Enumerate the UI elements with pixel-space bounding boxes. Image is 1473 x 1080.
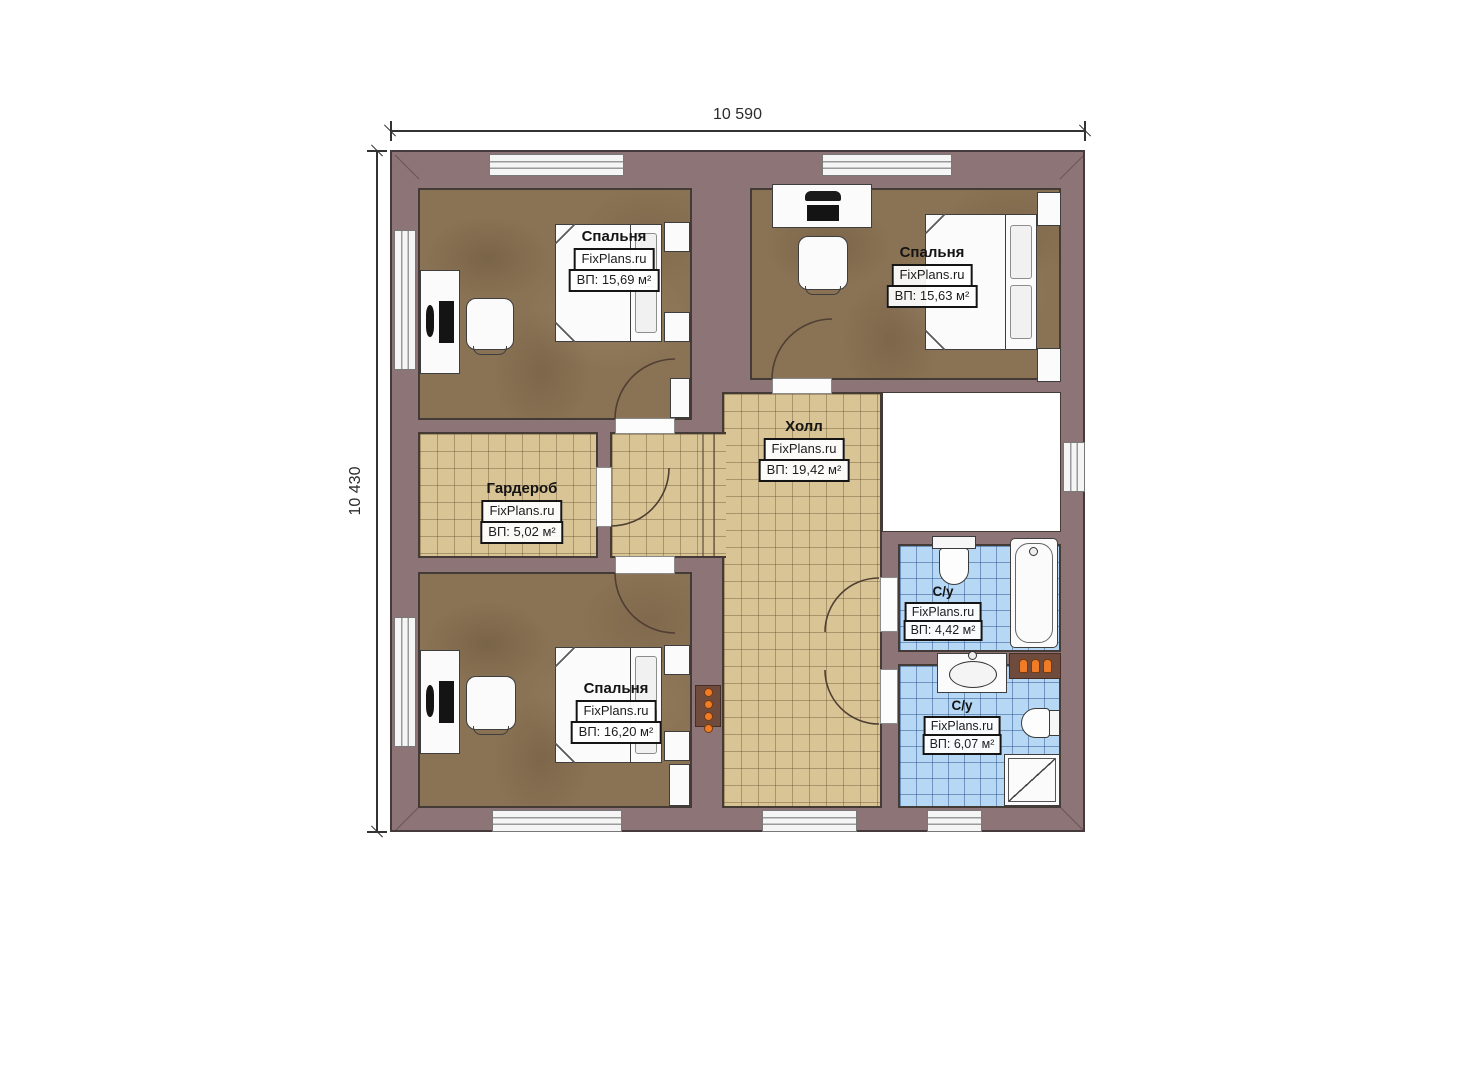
toilet-bowl-icon — [1021, 708, 1050, 738]
room-name: С/у — [932, 584, 953, 599]
blanket-fold-icon — [555, 647, 575, 667]
room-area: ВП: 15,69 м² — [569, 269, 660, 292]
office-chair — [798, 236, 848, 290]
door-opening — [615, 418, 675, 434]
watermark: FixPlans.ru — [575, 700, 656, 723]
computer-tower-icon — [439, 681, 454, 723]
toilet-tank-icon — [1049, 710, 1060, 736]
dimension-height-label: 10 430 — [347, 446, 365, 536]
door-opening — [772, 378, 832, 394]
room-corridor — [610, 432, 726, 558]
watermark: FixPlans.ru — [924, 716, 1001, 736]
room-label-bedroom-top-left: Спальня FixPlans.ru ВП: 15,69 м² — [569, 228, 660, 292]
nightstand — [1037, 348, 1061, 382]
door-opening — [880, 577, 898, 632]
room-label-hall: Холл FixPlans.ru ВП: 19,42 м² — [759, 418, 850, 482]
room-area: ВП: 19,42 м² — [759, 459, 850, 482]
room-area: ВП: 5,02 м² — [480, 521, 563, 544]
nightstand — [1037, 192, 1061, 226]
radiator-knob-icon — [704, 724, 713, 733]
dimension-extension — [1084, 121, 1086, 141]
room-unlabeled — [882, 392, 1061, 532]
room-area: ВП: 6,07 м² — [923, 734, 1002, 754]
floor-plan: Спальня FixPlans.ru ВП: 15,69 м² Спальня… — [390, 150, 1085, 832]
faucet-icon — [1029, 547, 1038, 556]
pillow-icon — [1010, 225, 1032, 279]
watermark: FixPlans.ru — [763, 438, 844, 461]
computer-tower-icon — [439, 301, 454, 343]
pillow-icon — [1010, 285, 1032, 339]
radiator-knob-icon — [704, 688, 713, 697]
computer-monitor-icon — [426, 685, 434, 717]
radiator-knob-icon — [704, 700, 713, 709]
room-label-bedroom-bottom: Спальня FixPlans.ru ВП: 16,20 м² — [571, 680, 662, 744]
door-opening — [880, 669, 898, 724]
toilet-bowl-icon — [939, 548, 969, 585]
room-area: ВП: 4,42 м² — [904, 620, 983, 640]
room-name: Спальня — [582, 228, 647, 245]
cabinet — [669, 764, 690, 806]
window — [489, 154, 624, 176]
window — [762, 810, 857, 832]
sink-counter — [937, 653, 1007, 693]
room-name: Холл — [785, 418, 823, 435]
watermark: FixPlans.ru — [905, 602, 982, 622]
sink-basin-icon — [949, 661, 997, 688]
bed-head — [1005, 215, 1036, 349]
blanket-fold-icon — [925, 214, 945, 234]
door-opening — [615, 556, 675, 574]
window — [394, 617, 416, 747]
blanket-fold-icon — [555, 322, 575, 342]
toilet — [1021, 708, 1061, 738]
bathtub — [1010, 538, 1058, 648]
blanket-fold-icon — [925, 330, 945, 350]
room-area: ВП: 15,63 м² — [887, 285, 978, 308]
computer-monitor-icon — [426, 305, 434, 337]
room-name: Гардероб — [487, 480, 558, 497]
towel-warmer — [1009, 653, 1061, 679]
nightstand — [664, 645, 690, 675]
window — [927, 810, 982, 832]
floor-plan-canvas: 10 590 10 430 — [0, 0, 1473, 1080]
towel-warmer-icon — [1043, 659, 1052, 673]
toilet — [932, 536, 976, 586]
radiator-knob-icon — [704, 712, 713, 721]
nightstand — [664, 312, 690, 342]
room-name: С/у — [951, 698, 972, 713]
blanket-fold-icon — [555, 743, 575, 763]
desk — [420, 270, 460, 374]
room-area: ВП: 16,20 м² — [571, 721, 662, 744]
room-label-bathroom-bottom: С/у FixPlans.ru ВП: 6,07 м² — [923, 698, 1002, 755]
watermark: FixPlans.ru — [481, 500, 562, 523]
room-label-bedroom-top-right: Спальня FixPlans.ru ВП: 15,63 м² — [887, 244, 978, 308]
printer-icon — [805, 191, 841, 201]
faucet-icon — [968, 651, 977, 660]
room-label-bathroom-top: С/у FixPlans.ru ВП: 4,42 м² — [904, 584, 983, 641]
watermark: FixPlans.ru — [573, 248, 654, 271]
nightstand — [664, 731, 690, 761]
office-chair — [466, 676, 516, 730]
computer-icon — [807, 205, 839, 221]
watermark: FixPlans.ru — [891, 264, 972, 287]
window — [394, 230, 416, 370]
dimension-extension — [390, 121, 392, 141]
towel-warmer-icon — [1019, 659, 1028, 673]
dimension-extension — [367, 831, 387, 833]
shower-tray-icon — [1008, 758, 1056, 802]
dimension-line-top — [390, 130, 1085, 132]
window — [492, 810, 622, 832]
dimension-extension — [367, 150, 387, 152]
room-name: Спальня — [900, 244, 965, 261]
pillow-icon — [635, 286, 657, 333]
cabinet — [670, 378, 690, 418]
door-opening — [596, 467, 612, 527]
window — [1063, 442, 1085, 492]
bathtub-inner-icon — [1015, 543, 1053, 643]
dimension-line-left — [376, 150, 378, 832]
nightstand — [664, 222, 690, 252]
room-name: Спальня — [584, 680, 649, 697]
desk — [772, 184, 872, 228]
room-label-wardrobe: Гардероб FixPlans.ru ВП: 5,02 м² — [480, 480, 563, 544]
desk — [420, 650, 460, 754]
shower — [1004, 754, 1060, 806]
dimension-width-label: 10 590 — [390, 106, 1085, 124]
office-chair — [466, 298, 514, 350]
towel-warmer-icon — [1031, 659, 1040, 673]
window — [822, 154, 952, 176]
radiator — [695, 685, 721, 727]
